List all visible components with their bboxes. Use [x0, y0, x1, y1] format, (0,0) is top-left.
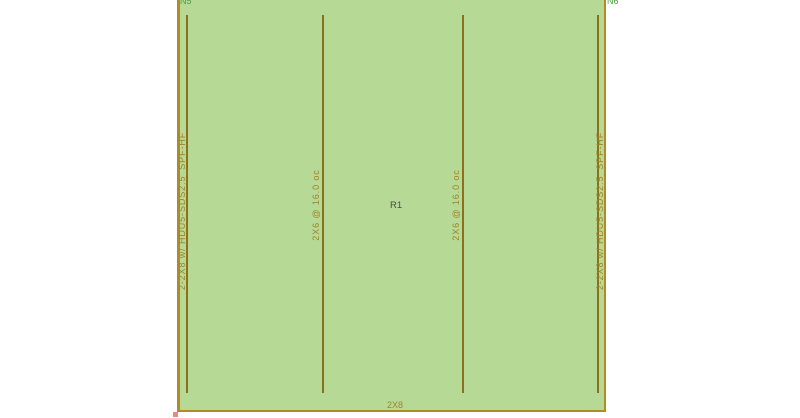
left-post-annotation: 2-2X8 w/ HDU5-SDS2.5_SPF-HF	[177, 132, 187, 290]
interior-stud-line	[462, 15, 464, 393]
interior-stud-line	[322, 15, 324, 393]
framing-plan-canvas: 2-2X8 w/ HDU5-SDS2.5_SPF-HF 2-2X8 w/ HDU…	[0, 0, 800, 418]
node-marker	[173, 412, 178, 417]
panel-id-label: R1	[390, 200, 402, 211]
bottom-plate-line	[177, 410, 606, 413]
stud-spacing-annotation: 2X6 @ 16.0 oc	[311, 169, 321, 240]
right-post-annotation: 2-2X8 w/ HDU5-SDS2.5_SPF-HF	[595, 132, 605, 290]
node-label-left: N5	[180, 0, 192, 6]
stud-spacing-annotation: 2X6 @ 16.0 oc	[451, 169, 461, 240]
node-label-right: N6	[607, 0, 619, 6]
bottom-plate-annotation: 2X8	[377, 400, 413, 410]
